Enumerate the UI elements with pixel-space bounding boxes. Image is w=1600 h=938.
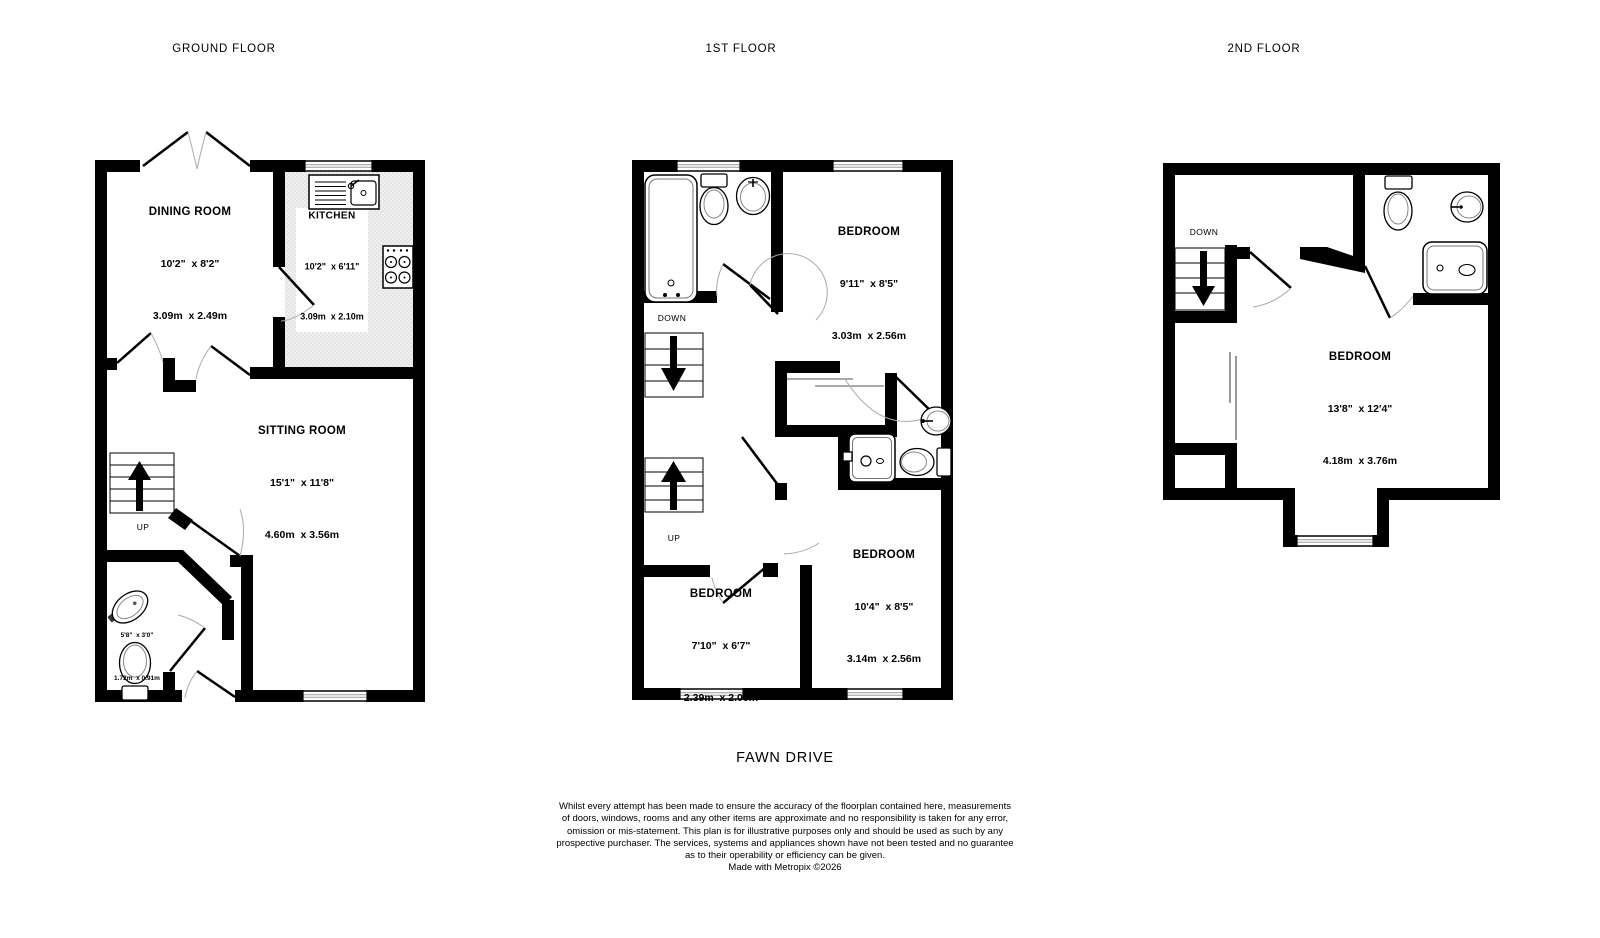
closet-shelf-lines <box>787 379 884 386</box>
room-name: BEDROOM <box>1323 350 1397 364</box>
french-door-leaf <box>143 132 188 166</box>
window <box>303 690 367 702</box>
floorplan-page: { "floors": [ { "title": "GROUND FLOOR",… <box>0 0 1600 938</box>
stairs-down-arrow-icon <box>661 336 686 391</box>
disclaimer-line: omission or mis-statement. This plan is … <box>556 826 1013 838</box>
room-name: BEDROOM <box>832 225 906 239</box>
staircase-down <box>645 333 703 397</box>
floor-title-second: 2ND FLOOR <box>1227 43 1300 55</box>
toilet-icon <box>900 448 951 476</box>
room-dims-metric: 3.09m x 2.49m <box>149 310 232 323</box>
bathtub-icon <box>1423 242 1487 294</box>
room-dims-imperial: 10'2" x 6'11" <box>300 262 364 273</box>
window <box>305 160 372 172</box>
disclaimer-line: as to their operability or efficiency ca… <box>556 850 1013 862</box>
toilet-icon <box>700 174 728 225</box>
shower-icon <box>843 434 895 482</box>
room-dims-metric: 3.09m x 2.10m <box>300 312 364 323</box>
staircase <box>110 453 174 513</box>
disclaimer: Whilst every attempt has been made to en… <box>556 801 1013 875</box>
staircase-down <box>1175 248 1225 310</box>
toilet-icon <box>1384 176 1412 230</box>
room-name: KITCHEN <box>300 211 364 223</box>
wardrobe-lines <box>1230 352 1236 440</box>
french-door-leaf <box>206 132 250 166</box>
door-leaf <box>211 346 250 375</box>
stairs-up-arrow-icon <box>128 461 151 511</box>
room-dims-metric: 4.60m x 3.56m <box>258 529 346 542</box>
stairs-down-label: DOWN <box>1190 227 1219 237</box>
room-dims-imperial: 9'11" x 8'5" <box>832 278 906 291</box>
stairs-down-label: DOWN <box>658 313 687 323</box>
room-dims-imperial: 10'2" x 8'2" <box>149 258 232 271</box>
room-label-bedroom-3: BEDROOM 7'10" x 6'7" 2.39m x 2.00m <box>684 548 758 724</box>
window <box>677 160 740 172</box>
door-leaf <box>191 521 240 556</box>
disclaimer-line: prospective purchaser. The services, sys… <box>556 838 1013 850</box>
floor-title-ground: GROUND FLOOR <box>172 43 276 55</box>
sink-icon <box>921 407 951 435</box>
property-address: FAWN DRIVE <box>736 750 834 766</box>
door-leaf <box>1250 252 1291 288</box>
room-dims-metric: 3.03m x 2.56m <box>832 330 906 343</box>
room-dims-imperial: 5'8" x 3'0" <box>114 632 160 639</box>
bay-window <box>1297 535 1373 547</box>
door-leaf <box>723 264 770 299</box>
staircase-up <box>645 458 703 512</box>
bathtub-icon <box>645 175 697 302</box>
sink-icon <box>1451 192 1483 222</box>
room-dims-imperial: 7'10" x 6'7" <box>684 640 758 653</box>
disclaimer-line: of doors, windows, rooms and any other i… <box>556 813 1013 825</box>
room-label-bedroom-2: BEDROOM 10'4" x 8'5" 3.14m x 2.56m <box>847 509 921 685</box>
floor-title-first: 1ST FLOOR <box>706 43 777 55</box>
door-leaf <box>117 333 151 363</box>
room-dims-metric: 2.39m x 2.00m <box>684 692 758 705</box>
room-label-wc: 5'8" x 3'0" 1.72m x 0.91m <box>114 597 160 699</box>
door-leaf <box>742 437 781 489</box>
room-name: BEDROOM <box>684 587 758 601</box>
room-name: BEDROOM <box>847 548 921 562</box>
stairs-up-label: UP <box>668 533 681 543</box>
room-dims-metric: 3.14m x 2.56m <box>847 653 921 666</box>
window <box>847 688 903 700</box>
sink-icon <box>737 178 770 215</box>
window <box>833 160 903 172</box>
disclaimer-line: Whilst every attempt has been made to en… <box>556 801 1013 813</box>
hob-icon <box>383 246 413 288</box>
door-leaf <box>197 671 235 697</box>
room-dims-imperial: 15'1" x 11'8" <box>258 477 346 490</box>
room-label-kitchen: KITCHEN 10'2" x 6'11" 3.09m x 2.10m <box>300 172 364 343</box>
door-leaf <box>170 628 205 671</box>
room-dims-metric: 4.18m x 3.76m <box>1323 455 1397 468</box>
room-label-bedroom-4: BEDROOM 13'8" x 12'4" 4.18m x 3.76m <box>1323 311 1397 487</box>
room-label-dining-room: DINING ROOM 10'2" x 8'2" 3.09m x 2.49m <box>149 166 232 342</box>
room-name: SITTING ROOM <box>258 424 346 438</box>
stairs-up-label: UP <box>137 522 150 532</box>
room-dims-metric: 1.72m x 0.91m <box>114 674 160 681</box>
room-name: DINING ROOM <box>149 205 232 219</box>
room-dims-imperial: 13'8" x 12'4" <box>1323 403 1397 416</box>
room-dims-imperial: 10'4" x 8'5" <box>847 601 921 614</box>
metropix-credit: Made with Metropix ©2026 <box>556 862 1013 874</box>
room-label-sitting-room: SITTING ROOM 15'1" x 11'8" 4.60m x 3.56m <box>258 385 346 561</box>
room-label-bedroom-1: BEDROOM 9'11" x 8'5" 3.03m x 2.56m <box>832 186 906 362</box>
